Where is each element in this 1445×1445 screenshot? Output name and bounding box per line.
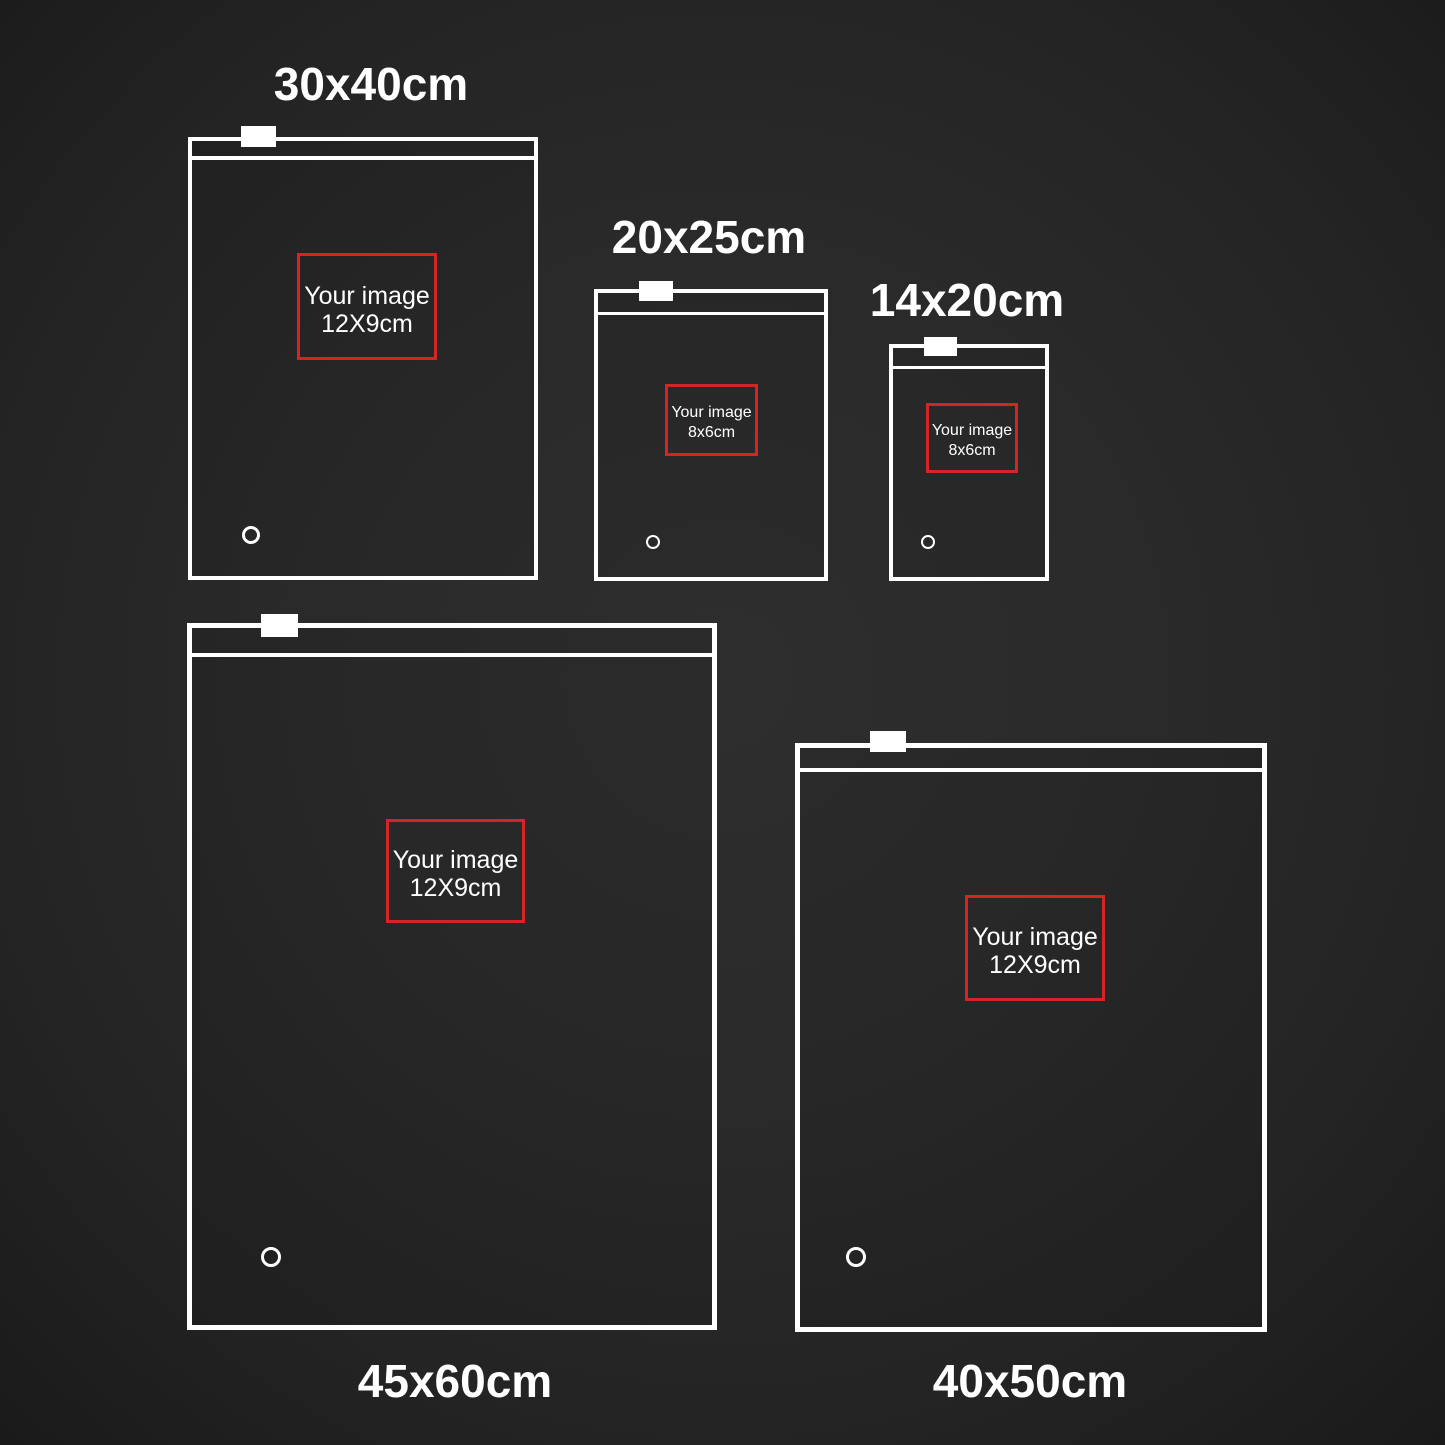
zipper-slider	[639, 281, 673, 301]
hang-hole	[846, 1247, 866, 1267]
image-placeholder-box: Your image12X9cm	[297, 253, 437, 360]
image-placeholder-box: Your image12X9cm	[386, 819, 525, 923]
zipper-track-line	[192, 653, 712, 657]
zipper-track-line	[893, 366, 1045, 369]
placeholder-text-line1: Your image	[393, 846, 519, 874]
bag-size-label: 45x60cm	[358, 1354, 552, 1408]
hang-hole	[921, 535, 935, 549]
bag-size-label: 40x50cm	[933, 1354, 1127, 1408]
zipper-slider	[870, 731, 906, 752]
zipper-slider	[924, 337, 957, 356]
placeholder-text-line2: 12X9cm	[410, 874, 502, 902]
placeholder-text-line2: 8x6cm	[688, 423, 735, 443]
zipper-slider	[261, 614, 298, 637]
bag-size-label: 30x40cm	[274, 57, 468, 111]
placeholder-text-line1: Your image	[304, 282, 430, 310]
zipper-track-line	[800, 768, 1262, 772]
hang-hole	[261, 1247, 281, 1267]
placeholder-text-line1: Your image	[972, 923, 1098, 951]
placeholder-text-line2: 12X9cm	[989, 951, 1081, 979]
placeholder-text-line1: Your image	[671, 403, 751, 423]
placeholder-text-line2: 8x6cm	[948, 441, 995, 461]
product-size-chart: Your image12X9cm30x40cmYour image8x6cm20…	[0, 0, 1445, 1445]
hang-hole	[242, 526, 260, 544]
image-placeholder-box: Your image8x6cm	[926, 403, 1018, 473]
zipper-slider	[241, 126, 276, 147]
bag-size-label: 20x25cm	[612, 210, 806, 264]
zipper-track-line	[598, 312, 824, 315]
hang-hole	[646, 535, 660, 549]
placeholder-text-line2: 12X9cm	[321, 310, 413, 338]
bag-outline-45x60cm	[187, 623, 717, 1330]
bag-size-label: 14x20cm	[870, 273, 1064, 327]
zipper-track-line	[192, 156, 534, 160]
bag-outline-40x50cm	[795, 743, 1267, 1332]
image-placeholder-box: Your image8x6cm	[665, 384, 758, 456]
image-placeholder-box: Your image12X9cm	[965, 895, 1105, 1001]
placeholder-text-line1: Your image	[932, 421, 1012, 441]
